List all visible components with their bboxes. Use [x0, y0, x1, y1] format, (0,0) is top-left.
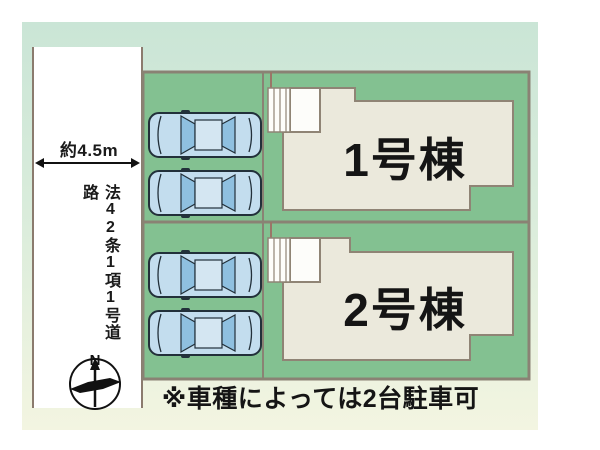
car-icon	[149, 308, 261, 358]
road-width-label: 約4.5m	[38, 136, 140, 161]
plot-1-label: 1号棟	[300, 124, 510, 190]
plot-2-label: 2号棟	[300, 274, 510, 340]
building-1-stairs-icon	[268, 88, 290, 132]
car-icon	[149, 110, 261, 160]
site-plan: N 約4.5m 法42条1項1号道路 1号棟 2号棟 ※車種によっては2台駐車可	[0, 0, 600, 450]
road-name-label: 法42条1項1号道路	[77, 184, 121, 354]
car-icon	[149, 168, 261, 218]
car-icon	[149, 250, 261, 300]
parking-note: ※車種によっては2台駐車可	[148, 379, 493, 415]
building-2-stairs-icon	[268, 238, 290, 282]
north-arrow-compass-icon: N	[70, 352, 121, 409]
